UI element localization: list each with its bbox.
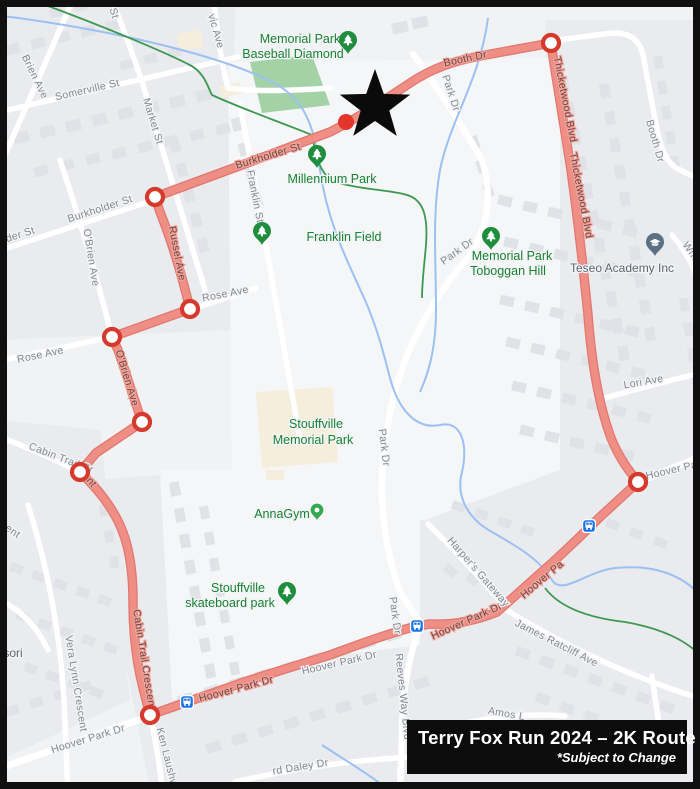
route-waypoint — [134, 414, 150, 430]
poi-label: Teseo Academy Inc — [570, 261, 674, 275]
park-label: Memorial Park — [472, 249, 553, 263]
poi-label: sori — [3, 646, 22, 660]
route-waypoint — [142, 707, 158, 723]
park-label: Toboggan Hill — [470, 264, 546, 278]
map-canvas[interactable]: StBrien AveSomerville StMarket Stvic Ave… — [0, 0, 700, 789]
route-waypoint — [72, 464, 88, 480]
park-label: skateboard park — [185, 596, 275, 610]
bus-stop-icon[interactable] — [410, 619, 424, 633]
bus-stop-icon[interactable] — [582, 519, 596, 533]
route-waypoint — [147, 189, 163, 205]
park-label: Franklin Field — [306, 230, 381, 244]
park-label: Millennium Park — [288, 172, 378, 186]
legend-title: Terry Fox Run 2024 – 2K Route — [418, 727, 676, 749]
start-finish-dot — [338, 114, 354, 130]
route-waypoint — [182, 301, 198, 317]
bus-stop-icon[interactable] — [180, 695, 194, 709]
park-label: Stouffville — [289, 417, 343, 431]
route-waypoint — [630, 474, 646, 490]
park-label: AnnaGym — [254, 507, 310, 521]
park-label: Baseball Diamond — [242, 47, 343, 61]
park-label: Stouffville — [211, 581, 265, 595]
park-label: Memorial Park — [273, 433, 354, 447]
legend-box: Terry Fox Run 2024 – 2K Route *Subject t… — [407, 720, 687, 774]
route-waypoint — [543, 35, 559, 51]
legend-subtitle: *Subject to Change — [418, 750, 676, 765]
route-waypoint — [104, 329, 120, 345]
park-label: Memorial Park — [260, 32, 341, 46]
map-flyer: StBrien AveSomerville StMarket Stvic Ave… — [0, 0, 700, 789]
